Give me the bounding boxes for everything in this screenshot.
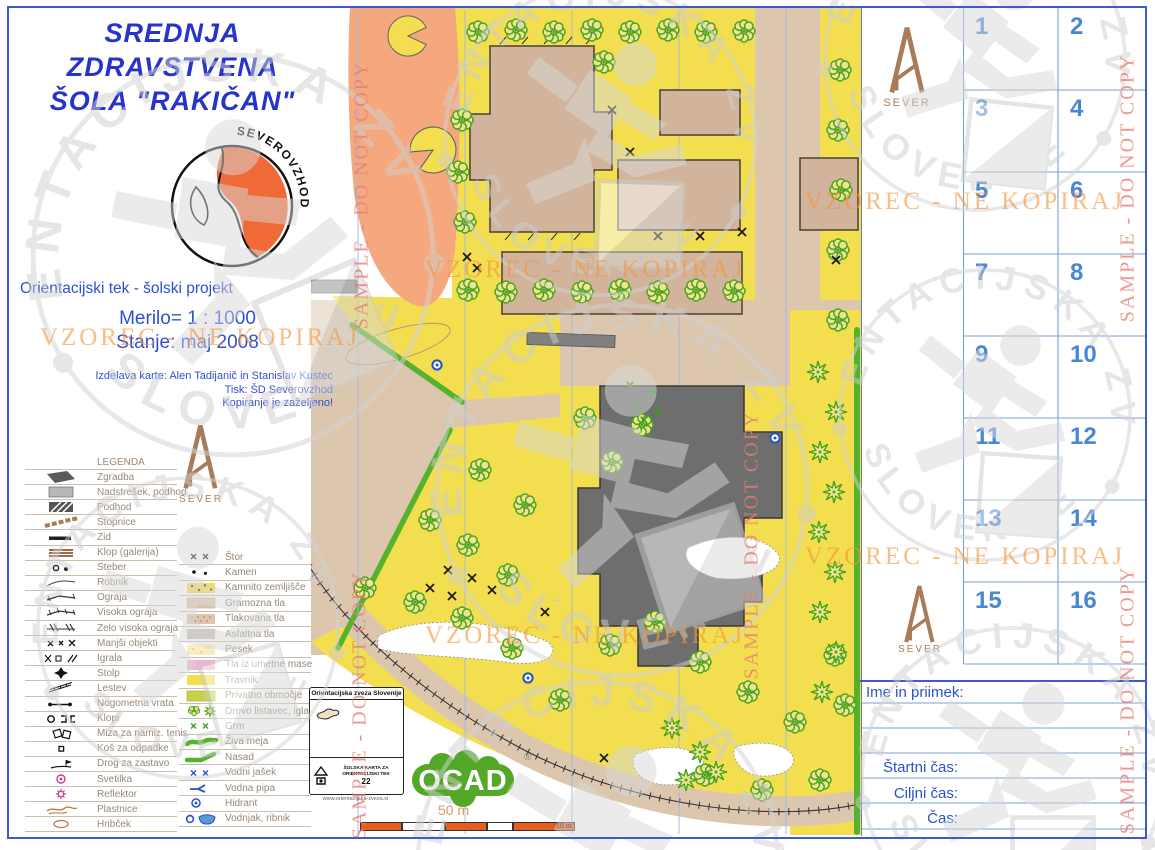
legend-item: Igrala — [25, 651, 177, 666]
legend-item-label: Vodna pipa — [225, 783, 275, 794]
legend-item-label: Steber — [97, 562, 126, 573]
legend-item-label: Pesek — [225, 644, 253, 655]
legend-item-label: Hidrant — [225, 798, 257, 809]
legend-item: Steber — [25, 561, 177, 576]
legend-item-label: Tlakovana tla — [225, 613, 284, 624]
grid-cell-number: 8 — [1070, 259, 1083, 287]
svg-text:SEVER: SEVER — [883, 97, 930, 109]
canopy-icon — [25, 485, 97, 499]
pond-icon — [179, 812, 225, 826]
legend-item: Stolp — [25, 666, 177, 681]
legend-item: Nasad — [179, 750, 311, 765]
grid-cell-number: 6 — [1070, 177, 1083, 205]
legend-item: Zid — [25, 530, 177, 545]
entry-lines — [860, 681, 1146, 829]
control-card-grid — [964, 8, 1146, 664]
stump-icon — [179, 550, 225, 564]
grass-icon — [179, 673, 225, 687]
legend-item-label: Koš za odpadke — [97, 743, 169, 754]
legend-item: Vodna pipa — [179, 781, 311, 796]
start-time-label: Štartni čas: — [860, 759, 958, 776]
grid-cell-number: 2 — [1070, 13, 1083, 41]
high-fence-icon — [25, 606, 97, 620]
legend-item: Drevo listavec, iglavec — [179, 704, 311, 719]
legend-header-label: LEGENDA — [97, 457, 145, 468]
hydrant-icon — [179, 796, 225, 810]
stone-icon — [179, 566, 225, 580]
grid-cell-number: 1 — [975, 13, 988, 41]
contours-icon — [25, 802, 97, 816]
legend-item-label: Stolp — [97, 668, 120, 679]
legend-item-label: Grm — [225, 721, 244, 732]
map-title-line3: ŠOLA "RAKIČAN" — [0, 86, 345, 117]
legend-item-label: Živa meja — [225, 736, 268, 747]
legend-item: Plastnice — [25, 802, 177, 817]
time-label: Čas: — [860, 810, 958, 827]
legend-item: Manjši objekti — [25, 636, 177, 651]
wall-icon — [25, 531, 97, 545]
legend-item: Podhod — [25, 500, 177, 515]
name-field-label: Ime in priimek: — [866, 684, 964, 701]
building-icon — [25, 470, 97, 484]
legend-item-label: Svetilka — [97, 774, 132, 785]
legend-item: Reflektor — [25, 787, 177, 802]
gravel-icon — [179, 596, 225, 610]
knoll-icon — [25, 817, 97, 831]
legend-item: Robnik — [25, 576, 177, 591]
legend-item-label: Podhod — [97, 502, 131, 513]
small-objects-icon — [25, 636, 97, 650]
legend-item: Klop (galerija) — [25, 546, 177, 561]
legend-item-label: Zelo visoka ograja — [97, 623, 178, 634]
floodlight-icon — [25, 787, 97, 801]
map-sheet: { "title": {"line1": "SREDNJA", "line2":… — [0, 0, 1155, 850]
legend-item-label: Vodni jašek — [225, 767, 276, 778]
credit-copy: Kopiranje je zaželjeno! — [0, 397, 333, 409]
grid-cell-number: 11 — [975, 423, 1000, 451]
legend-item: Nadstrešek, podhod — [25, 485, 177, 500]
legend-item: Ograja — [25, 591, 177, 606]
grid-cell-number: 10 — [1070, 341, 1097, 369]
legend-item-label: Drog za zastavo — [97, 758, 169, 769]
legend-item-label: Plastnice — [97, 804, 138, 815]
legend-item: Miza za namiz. tenis — [25, 727, 177, 742]
drain-icon — [179, 766, 225, 780]
flagpole-icon — [25, 757, 97, 771]
legend-item: Stopnice — [25, 515, 177, 530]
tap-icon — [179, 781, 225, 795]
grid-cell-number: 15 — [975, 587, 1002, 615]
grid-cell-number: 13 — [975, 505, 1002, 533]
legend-item: Asfaltna tla — [179, 627, 311, 642]
grid-cell-number: 16 — [1070, 587, 1097, 615]
trash-icon — [25, 742, 97, 756]
legend-item: Koš za odpadke — [25, 742, 177, 757]
subtitle: Orientacijski tek - šolski projekt — [20, 280, 233, 298]
scale-segment — [360, 822, 402, 831]
legend-item-label: Manjši objekti — [97, 638, 158, 649]
publisher-box: Orientacijska zveza Slovenije ŠOLSKA KAR… — [309, 687, 404, 795]
svg-text:SEVER: SEVER — [898, 644, 942, 655]
legend-item: Privatno območje — [179, 689, 311, 704]
legend-item: Kamnito zemljišče — [179, 581, 311, 596]
legend-item-label: Vodnjak, ribnik — [225, 813, 290, 824]
playground-icon — [25, 651, 97, 665]
legend-item: Drog za zastavo — [25, 757, 177, 772]
asphalt-icon — [179, 627, 225, 641]
legend-item-label: Ograja — [97, 592, 127, 603]
legend-item-label: Gramozna tla — [225, 598, 285, 609]
legend-item-label: Nasad — [225, 752, 254, 763]
curb-icon — [25, 576, 97, 590]
legend-item: Vodnjak, ribnik — [179, 812, 311, 827]
ladder-icon — [25, 681, 97, 695]
legend-column-2: ŠtorKamenKamnito zemljiščeGramozna tlaTl… — [179, 550, 311, 827]
legend-item: Hidrant — [179, 796, 311, 811]
private-icon — [179, 689, 225, 703]
legend-item: Zgradba — [25, 470, 177, 485]
slovenia-outline-icon — [316, 706, 342, 722]
legend-item-label: Klopi — [97, 713, 119, 724]
scale-segment — [402, 822, 445, 831]
scale-segment — [445, 822, 487, 831]
legend-item-label: Asfaltna tla — [225, 629, 274, 640]
legend-item-label: Tla iz umetne mase — [225, 659, 312, 670]
stairs-icon — [25, 515, 97, 529]
legend-item-label: Zgradba — [97, 472, 134, 483]
publisher-website: www.orientacijska-zveza.si — [303, 796, 408, 802]
legend-item-label: Privatno območje — [225, 690, 302, 701]
legend-item: Klopi — [25, 712, 177, 727]
map-scale: Merilo= 1 : 1000 — [0, 308, 375, 330]
legend-item: Tlakovana tla — [179, 612, 311, 627]
pillar-icon — [25, 561, 97, 575]
legend-item-label: Nadstrešek, podhod — [97, 487, 187, 498]
map-title-line2: ZDRAVSTVENA — [0, 52, 345, 83]
legend-item: Travnik — [179, 673, 311, 688]
credit-cartographers: Izdelava karte: Alen Tadijanič in Stanis… — [0, 370, 333, 382]
legend-item-label: Zid — [97, 532, 111, 543]
card-number: 22 — [329, 777, 403, 786]
legend-item-label: Klop (galerija) — [97, 547, 159, 558]
grid-cell-number: 4 — [1070, 95, 1083, 123]
scalebar-50m-label: 50 m — [438, 802, 469, 818]
school-map-logo-icon — [313, 766, 329, 786]
legend-item: Gramozna tla — [179, 596, 311, 611]
grid-cell-number: 14 — [1070, 505, 1097, 533]
scalebar-10m-label: 10 m — [556, 823, 572, 831]
ocad-logo: OCAD — [404, 752, 522, 808]
plantation-icon — [179, 750, 225, 764]
legend-item: Visoka ograja — [25, 606, 177, 621]
credit-print: Tisk: ŠD Severovzhod — [0, 384, 333, 396]
table-tennis-icon — [25, 727, 97, 741]
finish-time-label: Ciljni čas: — [860, 785, 958, 802]
scale-bar: 10 m — [360, 822, 575, 831]
legend-item: Živa meja — [179, 735, 311, 750]
legend-item-label: Miza za namiz. tenis — [97, 728, 188, 739]
legend-item-label: Kamnito zemljišče — [225, 582, 306, 593]
publisher-title: Orientacijska zveza Slovenije — [310, 688, 403, 700]
bush-icon — [179, 719, 225, 733]
grid-cell-number: 9 — [975, 341, 988, 369]
grid-cell-number: 3 — [975, 95, 988, 123]
legend-item-label: Stopnice — [97, 517, 136, 528]
legend-item: Štor — [179, 550, 311, 565]
legend-item-label: Lestev — [97, 683, 126, 694]
north-arrow-bottom: SEVER — [898, 586, 942, 655]
legend-header: LEGENDA — [25, 455, 177, 470]
goal-icon — [25, 697, 97, 711]
legend-item-label: Visoka ograja — [97, 607, 157, 618]
very-high-fence-icon — [25, 621, 97, 635]
legend-item: Lestev — [25, 681, 177, 696]
grid-cell-number: 7 — [975, 259, 988, 287]
scale-segment: 10 m — [513, 822, 575, 831]
north-arrow-top: SEVER — [883, 28, 930, 109]
svg-text:OCAD: OCAD — [418, 765, 507, 797]
legend-item-label: Reflektor — [97, 789, 137, 800]
map-status: Stanje: maj 2008 — [0, 332, 375, 354]
paved-icon — [179, 612, 225, 626]
tower-icon — [25, 666, 97, 680]
synthetic-icon — [179, 658, 225, 672]
hedge-icon — [179, 735, 225, 749]
map-title-line1: SREDNJA — [0, 18, 345, 49]
legend-item: Hribček — [25, 817, 177, 832]
stony-ground-icon — [179, 581, 225, 595]
club-logo: SEVEROVZHOD — [152, 133, 312, 283]
legend-item-label: Travnik — [225, 675, 257, 686]
lamp-icon — [25, 772, 97, 786]
legend-item: Pesek — [179, 642, 311, 657]
tree-icon — [179, 704, 225, 718]
grid-cell-number: 5 — [975, 177, 988, 205]
ocad-registered-mark: ® — [524, 752, 531, 763]
legend-item: Svetilka — [25, 772, 177, 787]
legend-item: Tla iz umetne mase — [179, 658, 311, 673]
legend-item-label: Robnik — [97, 577, 128, 588]
grid-cell-number: 12 — [1070, 423, 1097, 451]
bench-gallery-icon — [25, 546, 97, 560]
legend-item: Kamen — [179, 565, 311, 580]
legend-item: Zelo visoka ograja — [25, 621, 177, 636]
fence-icon — [25, 591, 97, 605]
legend-item: Grm — [179, 719, 311, 734]
legend-item: Nogometna vrata — [25, 697, 177, 712]
legend-column-1: LEGENDAZgradbaNadstrešek, podhodPodhodSt… — [25, 455, 177, 832]
scale-segment — [487, 822, 513, 831]
legend-item-label: Kamen — [225, 567, 257, 578]
legend-item-label: Nogometna vrata — [97, 698, 174, 709]
legend-item-label: Hribček — [97, 819, 131, 830]
benches-icon — [25, 712, 97, 726]
legend-item-label: Štor — [225, 552, 243, 563]
legend-item: Vodni jašek — [179, 765, 311, 780]
passage-icon — [25, 500, 97, 514]
legend-item-label: Igrala — [97, 653, 122, 664]
sand-icon — [179, 643, 225, 657]
